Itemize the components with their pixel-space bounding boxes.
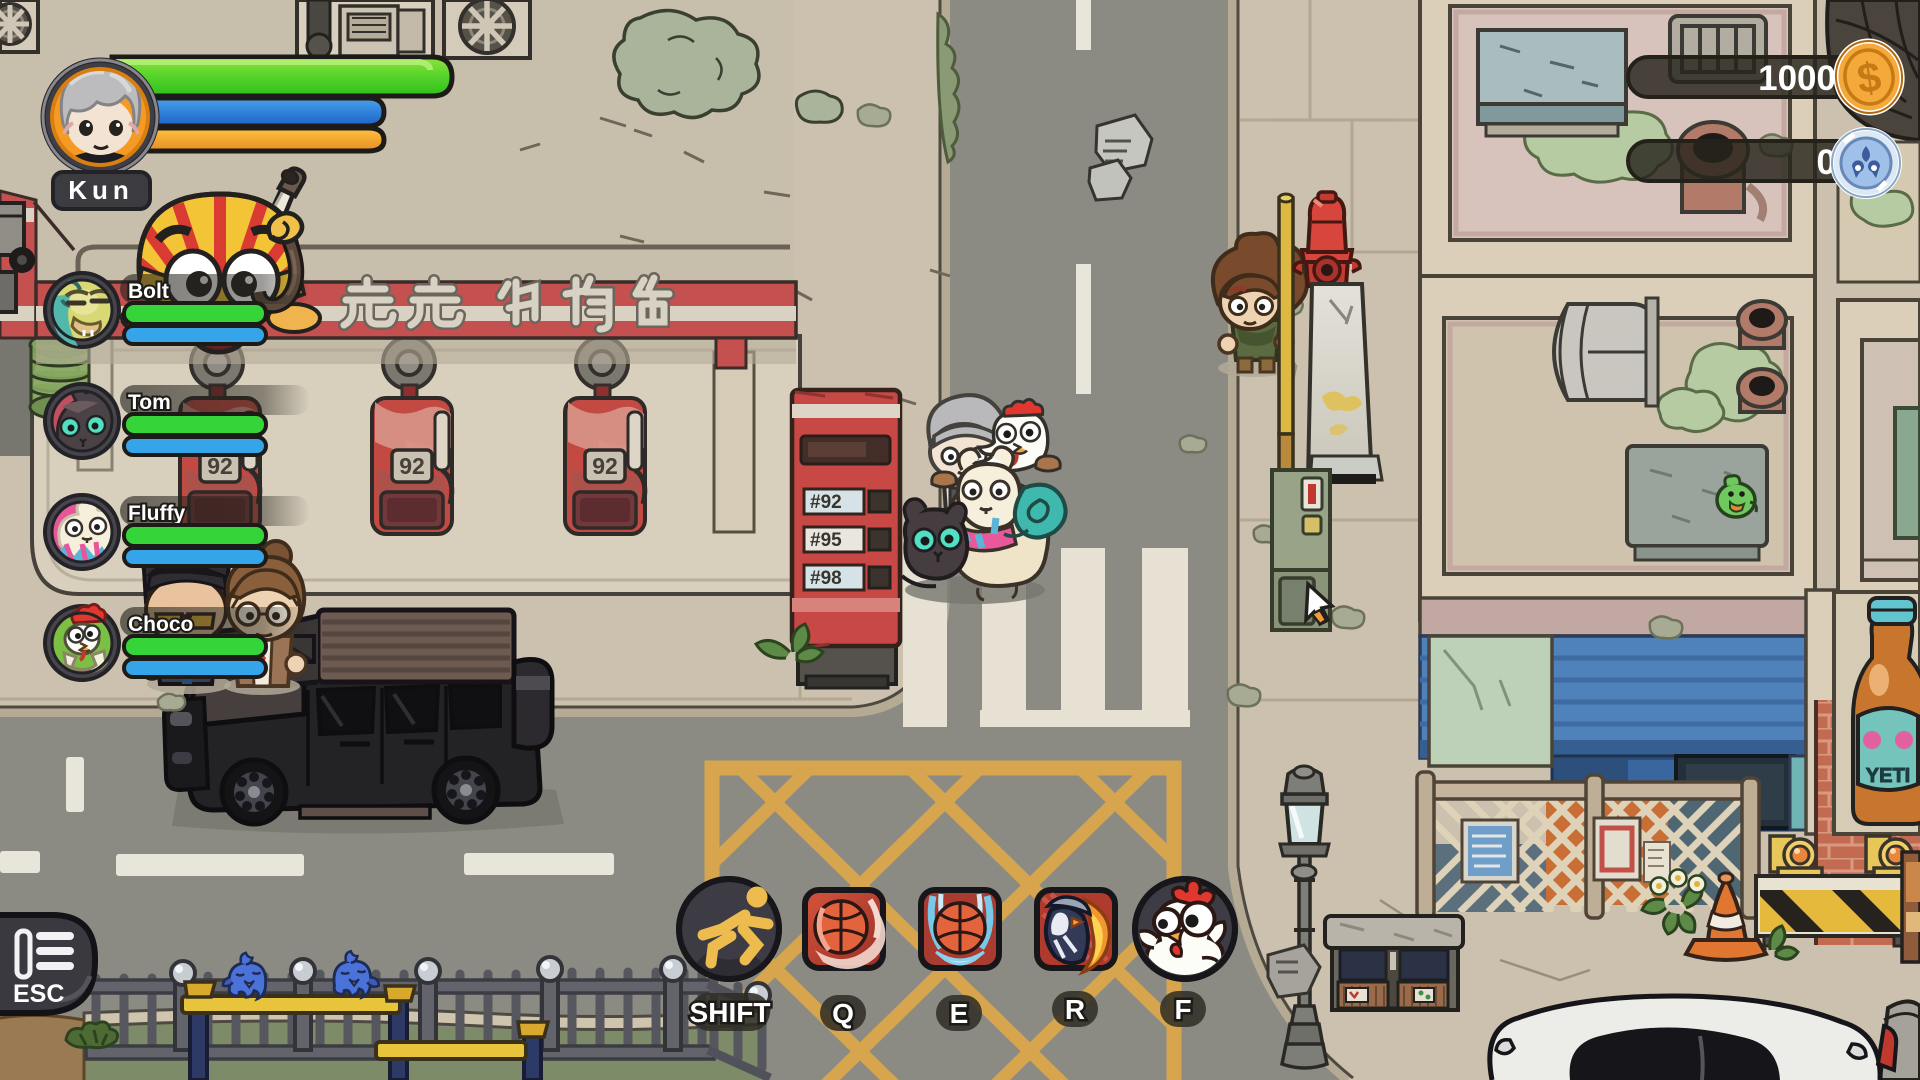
svg-text:Tom: Tom <box>128 391 171 414</box>
svg-text:Q: Q <box>832 998 854 1029</box>
svg-text:Choco: Choco <box>128 613 193 636</box>
svg-text:YETI: YETI <box>1866 765 1910 787</box>
svg-text:Kun: Kun <box>68 175 134 205</box>
svg-text:R: R <box>1065 994 1085 1025</box>
svg-text:#98: #98 <box>810 568 842 589</box>
svg-text:1000: 1000 <box>1758 59 1836 98</box>
svg-text:ESC: ESC <box>13 980 64 1008</box>
svg-text:F: F <box>1174 994 1191 1025</box>
svg-text:#92: #92 <box>810 492 842 513</box>
svg-text:Bolt: Bolt <box>128 280 169 303</box>
svg-text:SHIFT: SHIFT <box>690 997 771 1028</box>
svg-text:E: E <box>950 998 969 1029</box>
svg-text:Fluffy: Fluffy <box>128 502 185 525</box>
svg-text:#95: #95 <box>810 530 842 551</box>
